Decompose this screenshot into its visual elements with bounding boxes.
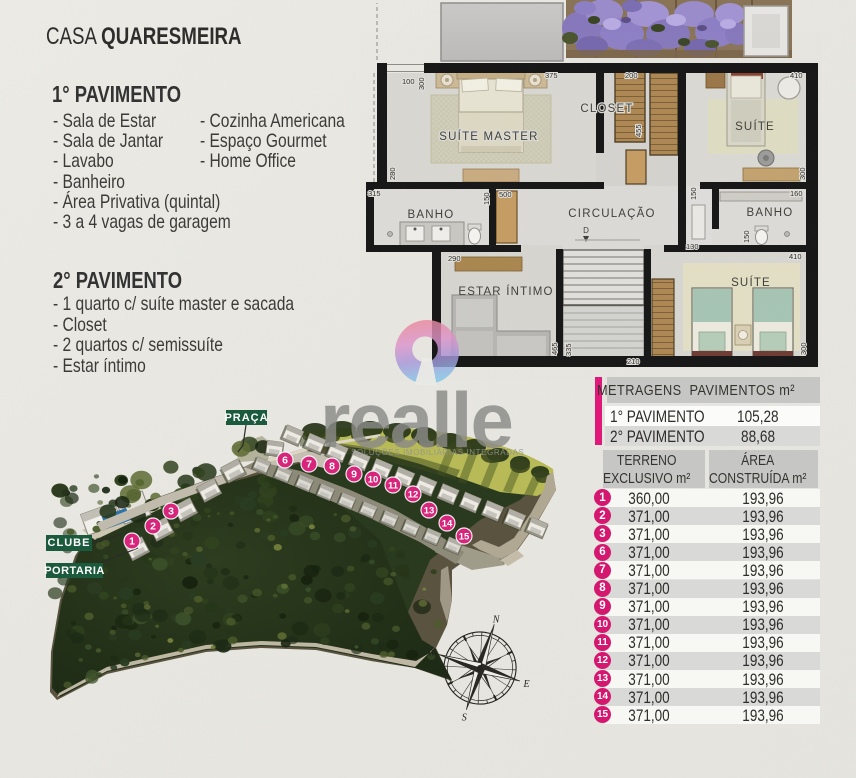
svg-text:150: 150 [689,187,698,200]
svg-text:W: W [427,648,437,659]
svg-text:9: 9 [351,469,357,481]
svg-text:410: 410 [790,71,803,80]
svg-text:300: 300 [799,342,808,355]
svg-text:300: 300 [798,167,807,180]
svg-text:14: 14 [442,519,453,530]
svg-text:210: 210 [627,357,640,366]
svg-text:290: 290 [448,254,461,263]
svg-text:12: 12 [408,490,419,501]
svg-text:280: 280 [388,167,397,180]
svg-text:160: 160 [790,189,803,198]
svg-text:410: 410 [789,252,802,261]
svg-text:SOLUÇÕES IMOBILIÁRIAS INTEGRAD: SOLUÇÕES IMOBILIÁRIAS INTEGRADAS [351,448,524,457]
svg-text:11: 11 [388,481,399,492]
svg-text:300: 300 [417,77,426,90]
svg-text:1: 1 [129,536,135,548]
svg-text:200: 200 [625,71,638,80]
svg-text:15: 15 [459,532,470,543]
svg-text:150: 150 [742,230,751,243]
svg-text:150: 150 [482,192,491,205]
svg-text:375: 375 [545,71,558,80]
svg-text:S: S [462,713,467,724]
svg-text:2: 2 [150,521,156,533]
svg-text:500: 500 [499,190,512,199]
svg-text:13: 13 [424,506,435,517]
svg-text:100: 100 [402,77,415,86]
svg-text:N: N [492,615,501,626]
svg-text:E: E [523,679,530,690]
svg-text:3: 3 [168,506,174,518]
svg-text:315: 315 [368,189,381,198]
svg-text:6: 6 [282,455,288,467]
svg-text:10: 10 [368,475,379,486]
svg-text:130: 130 [686,242,699,251]
svg-text:455: 455 [634,124,643,137]
